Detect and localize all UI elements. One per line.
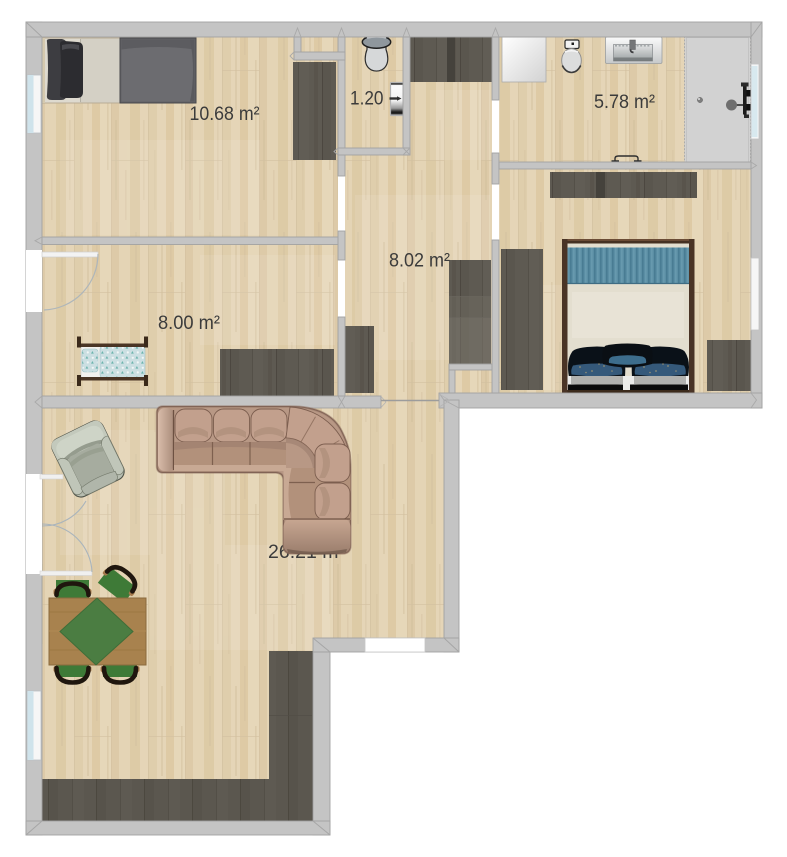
- svg-text:10.68 m²: 10.68 m²: [190, 103, 260, 125]
- svg-text:8.02 m²: 8.02 m²: [389, 250, 450, 272]
- svg-text:8.00 m²: 8.00 m²: [158, 312, 220, 334]
- svg-text:5.78 m²: 5.78 m²: [594, 91, 655, 113]
- svg-text:1.20: 1.20: [350, 88, 384, 110]
